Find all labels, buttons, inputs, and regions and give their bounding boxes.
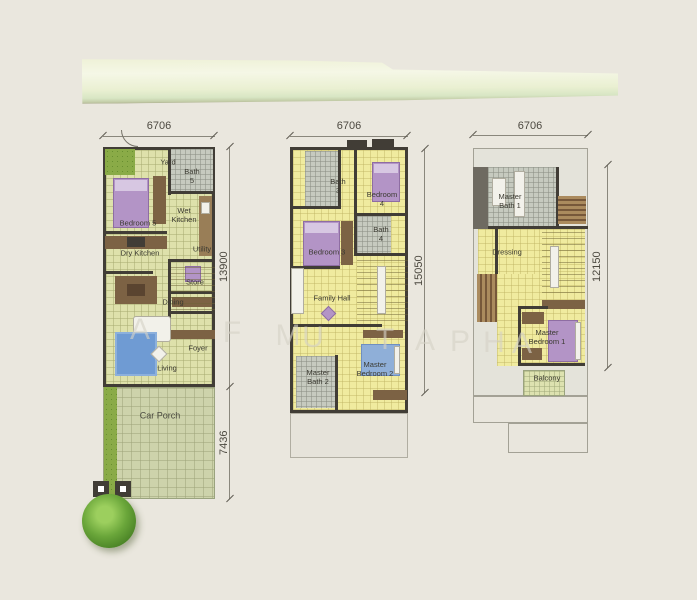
roof-outline [290, 413, 408, 458]
dresser [522, 312, 544, 324]
watermark-letter: A [130, 313, 150, 347]
decorative-strip [82, 54, 618, 104]
dimension-line [607, 165, 608, 368]
room-label-bedroom4: Bedroom 4 [367, 190, 397, 208]
wall-block [473, 167, 488, 229]
bed-pillow [575, 322, 581, 360]
dimension-height-porch: 7436 [217, 410, 231, 476]
room-label-master-bedroom2: Master Bedroom 2 [357, 360, 394, 378]
room-label-foyer: Foyer [188, 344, 207, 353]
yard-garden [105, 149, 135, 175]
bed-pillow [374, 164, 398, 173]
room-label-bath5: Bath 5 [184, 167, 199, 185]
sofa [291, 268, 304, 314]
ground-floor-plan: 6706 [85, 120, 245, 598]
roof-outline [473, 396, 588, 423]
watermark-letter: F [223, 316, 241, 350]
stair-rail [377, 266, 386, 314]
room-label-dry-kitchen: Dry Kitchen [121, 249, 160, 258]
stair-rail [550, 246, 559, 288]
tree [82, 494, 136, 548]
watermark-letter: M [276, 319, 301, 353]
wardrobe [341, 221, 353, 265]
louver-roof [477, 274, 497, 322]
watermark-letter: P [450, 325, 470, 359]
room-label-family-hall: Family Hall [313, 294, 350, 303]
room-label-bath3: Bath 3 [330, 177, 345, 195]
room-label-master-bedroom1: Master Bedroom 1 [529, 328, 566, 346]
dimension-height: 15050 [412, 234, 426, 308]
room-label-store: Store [186, 278, 204, 287]
dimension-width: 6706 [319, 120, 379, 132]
bed-pillow [115, 180, 147, 191]
cabinet [542, 300, 585, 309]
bed-pillow [394, 346, 400, 374]
dining-table-center [127, 284, 145, 296]
room-label-balcony: Balcony [534, 374, 561, 383]
room-label-bedroom3: Bedroom 3 [309, 248, 346, 257]
dimension-width: 6706 [500, 120, 560, 132]
staircase [542, 232, 585, 298]
room-label-bedroom5: Bedroom 5 [120, 219, 157, 228]
foyer-cabinet [171, 330, 215, 339]
dimension-line [290, 136, 408, 137]
roof-outline [508, 423, 588, 453]
second-floor-plan: 6706 12150 Master Bath [450, 120, 620, 480]
bed-pillow [305, 223, 338, 233]
watermark-letter: H [483, 326, 505, 360]
dimension-line [103, 136, 215, 137]
room-label-wet-kitchen: Wet Kitchen [171, 206, 196, 224]
wardrobe [153, 176, 166, 224]
room-label-car-porch: Car Porch [140, 411, 181, 422]
room-label-master-bath2: Master Bath 2 [307, 368, 330, 386]
cooker-hob [127, 237, 145, 247]
watermark-letter: T [376, 323, 394, 357]
room-label-yard: Yard [160, 158, 175, 167]
room-label-dressing: Dressing [492, 248, 522, 257]
dimension-line [473, 135, 588, 136]
room-label-bath4: Bath 4 [373, 225, 388, 243]
entry-door-arc [121, 130, 138, 147]
wardrobe [373, 390, 407, 400]
room-label-dining: Dining [162, 298, 183, 307]
room-label-living: Living [157, 364, 177, 373]
dimension-height: 12150 [590, 230, 604, 304]
watermark-letter: U [302, 321, 324, 355]
kitchen-sink [201, 202, 210, 214]
dimension-height-main: 13900 [217, 208, 231, 326]
dimension-width: 6706 [129, 120, 189, 132]
watermark-letter: A [415, 324, 435, 358]
room-label-master-bath1: Master Bath 1 [499, 192, 522, 210]
floor-plan-sheet: A F M U T A P H A 6706 [0, 0, 697, 600]
first-floor-plan: 6706 15050 B [275, 120, 435, 480]
watermark-letter: A [512, 327, 532, 361]
room-label-utility: Utility [193, 245, 211, 254]
louver-roof [558, 196, 586, 224]
